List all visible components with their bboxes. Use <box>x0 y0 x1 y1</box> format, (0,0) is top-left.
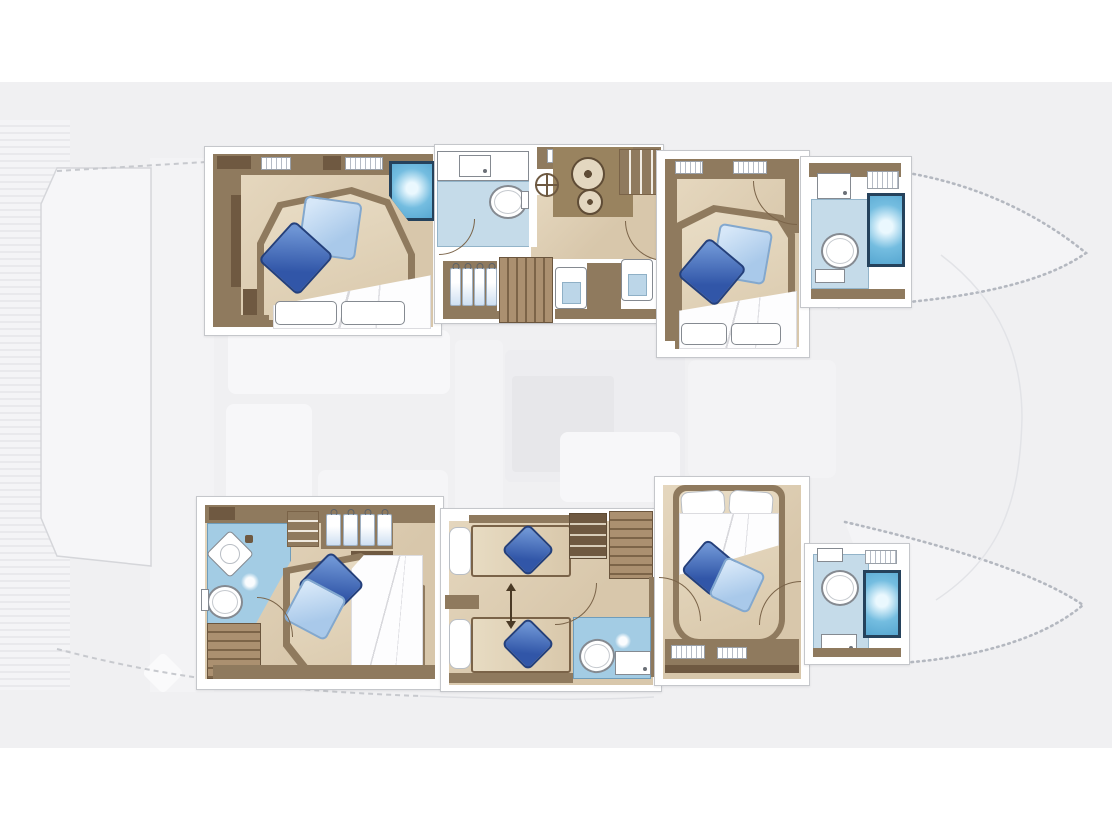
shower-head <box>241 573 259 591</box>
cistern <box>201 589 209 611</box>
cabin-stbd-forward <box>654 476 810 686</box>
duvet <box>351 555 423 677</box>
joinery-strip <box>813 648 901 657</box>
washbasin <box>615 651 651 675</box>
hanging-wardrobe <box>321 509 393 549</box>
joinery-strip <box>469 515 571 523</box>
cabinet <box>209 507 235 520</box>
cabin-stbd-aft <box>196 496 444 690</box>
garment <box>343 514 358 546</box>
shelves <box>287 511 319 547</box>
step <box>445 595 479 609</box>
cabinet-slot <box>865 550 897 564</box>
joinery-strip <box>665 665 799 673</box>
cabinet-slot <box>671 645 705 659</box>
cabinet-slot <box>717 647 747 659</box>
joinery-strip <box>449 673 573 683</box>
white-pillow <box>449 619 471 669</box>
toilet <box>821 570 859 606</box>
joinery-strip <box>213 665 435 679</box>
cabinet-band <box>205 505 435 523</box>
shower-tray <box>866 573 898 635</box>
stbd-forward-ensuite <box>804 543 910 665</box>
bed-conversion-arrow <box>505 583 517 629</box>
floor-plan-canvas <box>0 0 1112 834</box>
basin-bowl <box>216 540 244 568</box>
starboard-hull <box>0 0 1112 834</box>
toilet <box>207 585 243 619</box>
white-pillow <box>449 527 471 575</box>
garment <box>377 514 392 546</box>
cabinet <box>569 513 607 559</box>
shower-head <box>615 633 631 649</box>
cabin-stbd-twin <box>440 508 662 692</box>
cistern <box>817 548 843 562</box>
faucet <box>245 535 253 543</box>
shower-cubicle <box>863 570 901 638</box>
stairs <box>609 511 653 579</box>
garment <box>360 514 375 546</box>
garment <box>326 514 341 546</box>
